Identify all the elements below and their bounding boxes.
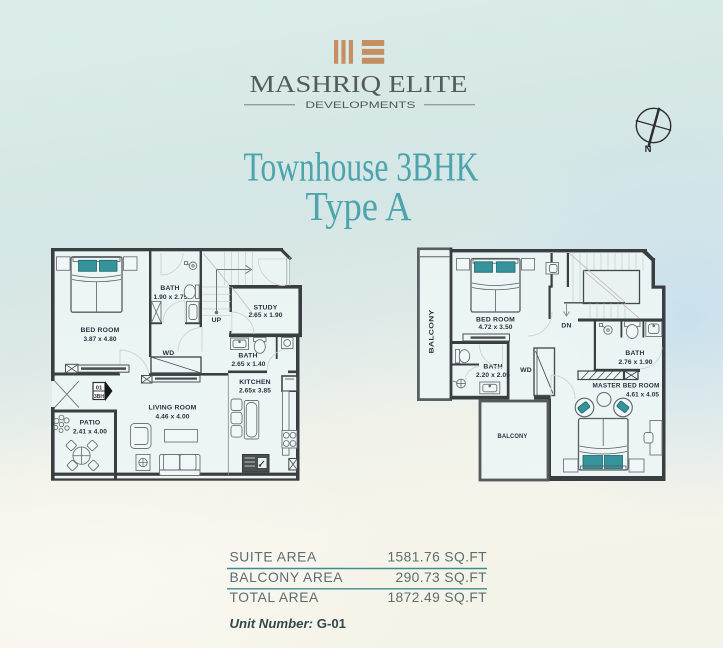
svg-text:2.76 x 1.90: 2.76 x 1.90 — [619, 359, 653, 366]
svg-text:MASTER BED ROOM: MASTER BED ROOM — [593, 383, 660, 390]
svg-text:290.73 SQ.FT: 290.73 SQ.FT — [396, 570, 488, 585]
svg-text:01: 01 — [96, 386, 103, 392]
svg-text:DN: DN — [561, 323, 571, 330]
svg-text:TOTAL AREA: TOTAL AREA — [230, 590, 320, 605]
svg-text:2.65 x 1.90: 2.65 x 1.90 — [249, 312, 283, 319]
svg-text:BALCONY AREA: BALCONY AREA — [230, 570, 344, 585]
svg-text:BED ROOM: BED ROOM — [81, 327, 120, 334]
svg-text:Type A: Type A — [306, 183, 412, 229]
svg-text:N: N — [645, 144, 652, 155]
svg-text:SUITE AREA: SUITE AREA — [230, 550, 317, 565]
svg-text:BATH: BATH — [625, 350, 644, 357]
svg-text:4.72 x 3.50: 4.72 x 3.50 — [479, 324, 513, 331]
svg-text:1581.76 SQ.FT: 1581.76 SQ.FT — [387, 550, 487, 565]
svg-text:BED ROOM: BED ROOM — [476, 317, 515, 324]
svg-text:BATH: BATH — [238, 353, 257, 360]
svg-text:BALCONY: BALCONY — [498, 433, 528, 440]
svg-text:BATH: BATH — [160, 285, 179, 292]
svg-text:2.41 x 4.00: 2.41 x 4.00 — [73, 429, 107, 436]
svg-text:2.65x 3.85: 2.65x 3.85 — [239, 388, 271, 395]
svg-text:PATIO: PATIO — [80, 420, 101, 427]
svg-text:MASHRIQ ELITE: MASHRIQ ELITE — [250, 71, 468, 98]
svg-text:4.61 x 4.05: 4.61 x 4.05 — [626, 392, 659, 399]
svg-text:2.20 x 2.05: 2.20 x 2.05 — [476, 372, 510, 379]
svg-text:KITCHEN: KITCHEN — [239, 379, 271, 386]
svg-text:UP: UP — [212, 317, 222, 324]
svg-text:2.65 x 1.40: 2.65 x 1.40 — [232, 361, 266, 368]
svg-text:LIVING ROOM: LIVING ROOM — [149, 405, 197, 412]
svg-text:4.46 x 4.00: 4.46 x 4.00 — [156, 414, 190, 421]
svg-text:Unit Number: G-01: Unit Number: G-01 — [230, 616, 347, 631]
svg-text:3.87 x 4.80: 3.87 x 4.80 — [84, 336, 117, 343]
svg-text:1872.49 SQ.FT: 1872.49 SQ.FT — [387, 590, 487, 605]
svg-text:DEVELOPMENTS: DEVELOPMENTS — [305, 100, 415, 111]
svg-text:STUDY: STUDY — [253, 305, 277, 312]
svg-text:1.90 x 2.75: 1.90 x 2.75 — [154, 294, 188, 301]
svg-text:WD: WD — [163, 350, 175, 357]
svg-text:BALCONY: BALCONY — [429, 309, 436, 353]
svg-text:3BH: 3BH — [94, 394, 104, 400]
svg-text:WD: WD — [520, 367, 532, 374]
